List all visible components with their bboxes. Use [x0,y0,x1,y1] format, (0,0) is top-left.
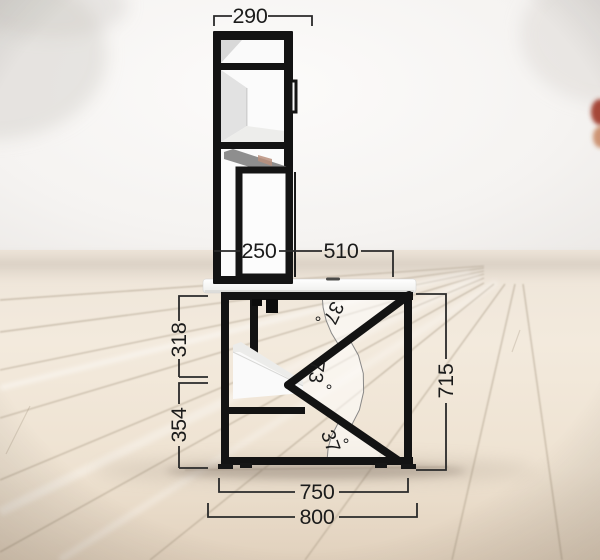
vignette-overlay [0,0,600,560]
technical-drawing-canvas: 290 250 510 318 354 715 750 [0,0,600,560]
screenshot-root: 290 250 510 318 354 715 750 [0,0,600,560]
